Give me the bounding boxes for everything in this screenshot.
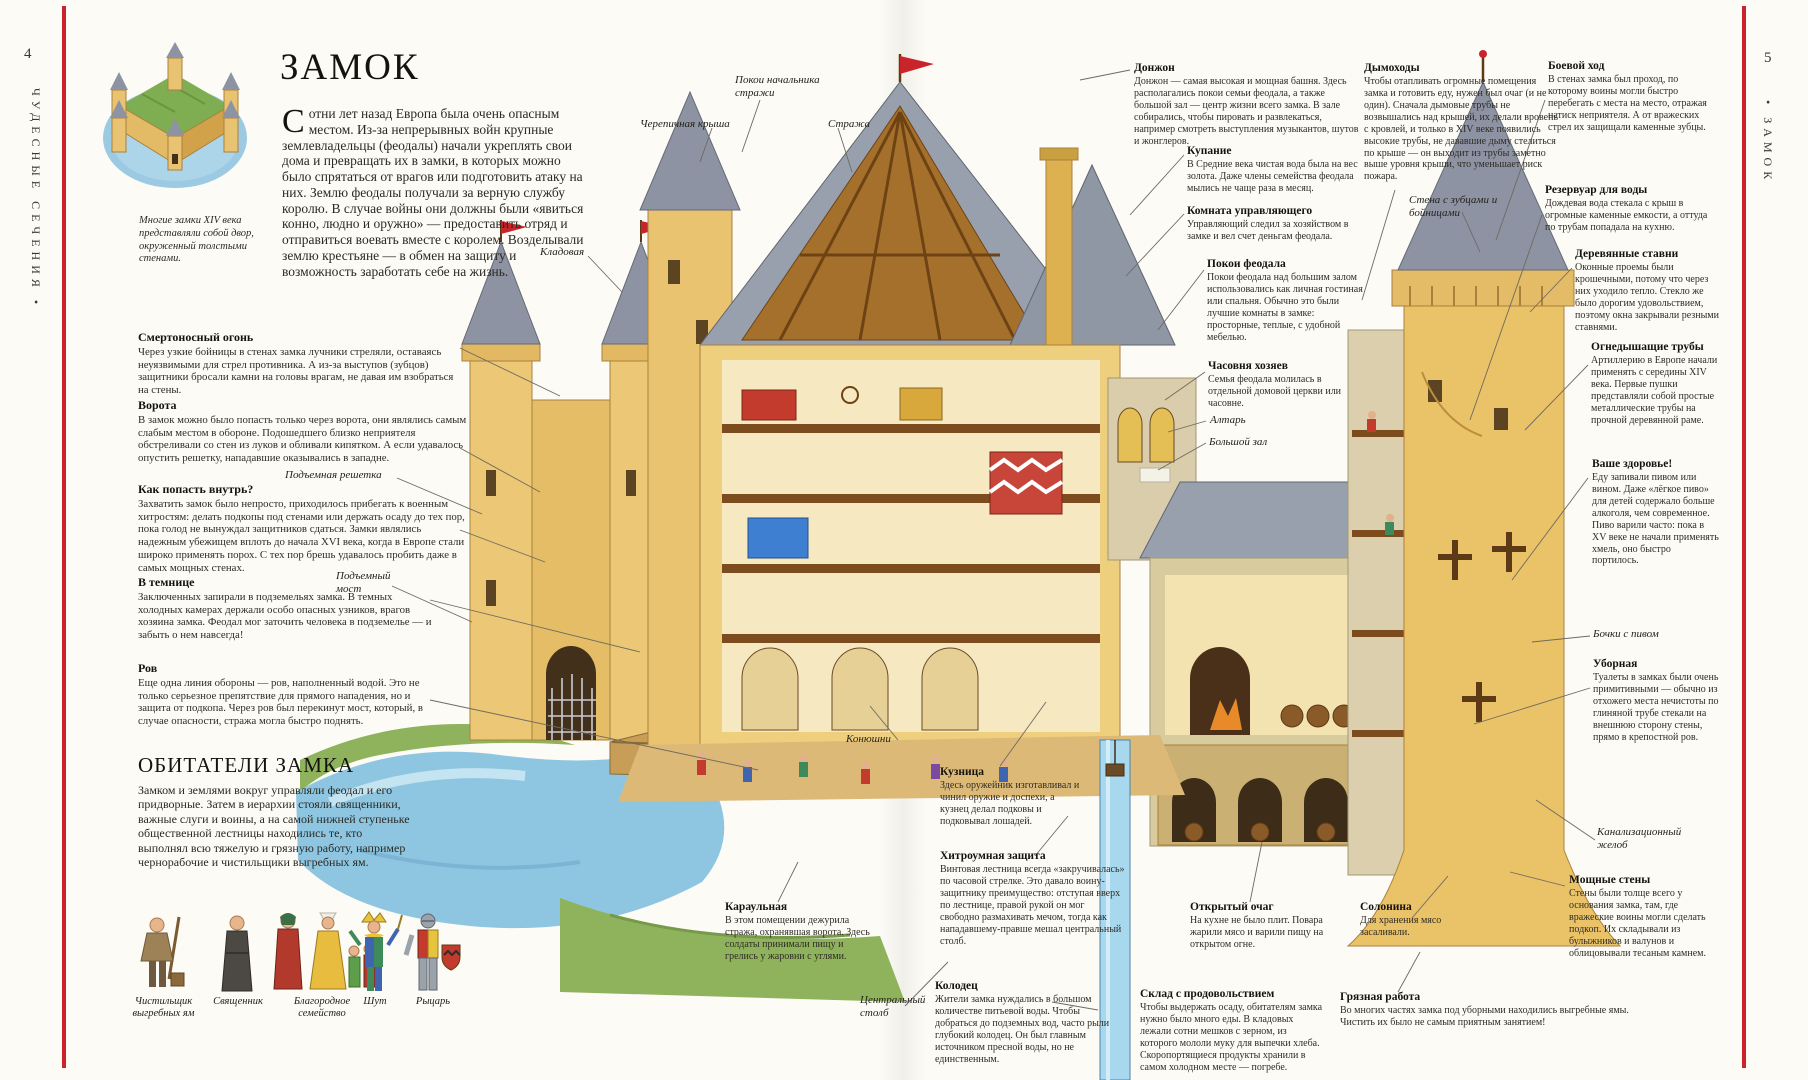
- annotation-title: Боевой ход: [1548, 60, 1716, 73]
- series-title-vertical: ЧУДЕСНЫЕ СЕЧЕНИЯ •: [28, 88, 43, 309]
- book-spread: 4 5 ЧУДЕСНЫЕ СЕЧЕНИЯ • • ЗАМОК ЗАМОК Сот…: [0, 0, 1808, 1080]
- annotation-text: Захватить замок было непросто, приходило…: [138, 498, 468, 575]
- annotation-title: Хитроумная защита: [940, 850, 1126, 863]
- annotation-title: Как попасть внутрь?: [138, 483, 468, 497]
- label-stables: Конюшни: [846, 733, 891, 746]
- annotation-title: Деревянные ставни: [1575, 248, 1720, 261]
- annotation-title: Резервуар для воды: [1545, 184, 1717, 197]
- annotation-text: Здесь оружейник изготавливал и чинил ору…: [940, 780, 1082, 828]
- right-page-number: 5: [1764, 50, 1772, 67]
- label-beer-barrels: Бочки с пивом: [1593, 628, 1659, 641]
- annotation-salted-meat: Солонина Для хранения мясо засаливали.: [1360, 901, 1472, 939]
- annotation-text: Дождевая вода стекала с крыш в огромные …: [1545, 198, 1717, 234]
- page-title: ЗАМОК: [280, 46, 420, 89]
- annotation-title: Колодец: [935, 980, 1117, 993]
- label-great-hall: Большой зал: [1209, 436, 1267, 449]
- inhabitants-section-title: ОБИТАТЕЛИ ЗАМКА: [138, 753, 354, 778]
- annotation-title: Донжон: [1134, 62, 1362, 75]
- annotation-deadly-fire: Смертоносный огонь Через узкие бойницы в…: [138, 331, 460, 397]
- figure-priest-illustration: [212, 913, 262, 995]
- annotation-title: Ваше здоровье!: [1592, 458, 1720, 471]
- annotation-title: Комната управляющего: [1187, 205, 1362, 218]
- label-guards: Стража: [828, 118, 870, 131]
- intro-paragraph: Сотни лет назад Европа была очень опасны…: [282, 106, 584, 280]
- annotation-text: Еду запивали пивом или вином. Даже «лёгк…: [1592, 472, 1720, 567]
- annotation-text: В замок можно было попасть только через …: [138, 414, 468, 465]
- annotation-title: Покои феодала: [1207, 258, 1369, 271]
- label-storeroom: Кладовая: [540, 246, 584, 259]
- figure-caption-gong-farmer: Чистильщик выгребных ям: [116, 996, 211, 1020]
- annotation-text: Жители замка нуждались в большом количес…: [935, 994, 1117, 1065]
- annotation-text: Стены были толще всего у основания замка…: [1569, 888, 1721, 959]
- annotation-text: Семья феодала молилась в отдельной домов…: [1208, 374, 1358, 410]
- figure-caption-priest: Священник: [198, 996, 278, 1008]
- annotation-title: Дымоходы: [1364, 62, 1560, 75]
- annotation-text: Через узкие бойницы в стенах замка лучни…: [138, 346, 460, 397]
- annotation-text: В Средние века чистая вода была на вес з…: [1187, 159, 1367, 195]
- annotation-food-store: Склад с продовольствием Чтобы выдержать …: [1140, 988, 1326, 1074]
- annotation-open-hearth: Открытый очаг На кухне не было плит. Пов…: [1190, 901, 1330, 951]
- left-page-number: 4: [24, 46, 32, 63]
- annotation-text: Покои феодала над большим залом использо…: [1207, 272, 1369, 343]
- annotation-gates: Ворота В замок можно было попасть только…: [138, 399, 468, 465]
- annotation-text: На кухне не было плит. Повара жарили мяс…: [1190, 915, 1330, 951]
- annotation-title: Часовня хозяев: [1208, 360, 1358, 373]
- annotation-guardroom: Караульная В этом помещении дежурила стр…: [725, 901, 877, 963]
- annotation-title: Огнедышащие трубы: [1591, 341, 1721, 354]
- label-crenellated-wall: Стена с зубцами и бойницами: [1409, 194, 1521, 220]
- annotation-donjon: Донжон Донжон — самая высокая и мощная б…: [1134, 62, 1362, 148]
- figure-caption-knight: Рыцарь: [398, 996, 468, 1008]
- annotation-steward-room: Комната управляющего Управляющий следил …: [1187, 205, 1362, 243]
- annotation-text: Туалеты в замках были очень примитивными…: [1593, 672, 1719, 743]
- figure-knight-illustration: [398, 911, 464, 995]
- label-tiled-roof: Черепичная крыша: [640, 118, 730, 131]
- annotation-dirty-work: Грязная работа Во многих частях замка по…: [1340, 991, 1655, 1029]
- chapter-title-vertical: • ЗАМОК: [1760, 100, 1775, 184]
- annotation-wall-walk: Боевой ход В стенах замка был проход, по…: [1548, 60, 1716, 134]
- inhabitants-section-text: Замком и землями вокруг управляли феодал…: [138, 783, 410, 869]
- label-guard-captain-quarters: Покои начальника стражи: [735, 74, 847, 100]
- annotation-moat: Ров Еще одна линия обороны — ров, наполн…: [138, 662, 438, 728]
- annotation-title: Караульная: [725, 901, 877, 914]
- annotation-title: Ров: [138, 662, 438, 676]
- annotation-fire-breathing-guns: Огнедышащие трубы Артиллерию в Европе на…: [1591, 341, 1721, 427]
- annotation-text: Чтобы выдержать осаду, обитателям замка …: [1140, 1002, 1326, 1073]
- annotation-title: Смертоносный огонь: [138, 331, 460, 345]
- annotation-cunning-defense: Хитроумная защита Винтовая лестница всег…: [940, 850, 1126, 947]
- annotation-chapel: Часовня хозяев Семья феодала молилась в …: [1208, 360, 1358, 410]
- annotation-text: Оконные проемы были крошечными, потому ч…: [1575, 262, 1720, 333]
- annotation-title: Уборная: [1593, 658, 1719, 671]
- label-portcullis: Подъемная решетка: [285, 469, 382, 482]
- annotation-latrine: Уборная Туалеты в замках были очень прим…: [1593, 658, 1719, 744]
- annotation-text: Для хранения мясо засаливали.: [1360, 915, 1472, 939]
- annotation-your-health: Ваше здоровье! Еду запивали пивом или ви…: [1592, 458, 1720, 567]
- annotation-title: Склад с продовольствием: [1140, 988, 1326, 1001]
- annotation-forge: Кузница Здесь оружейник изготавливал и ч…: [940, 766, 1082, 828]
- annotation-title: Грязная работа: [1340, 991, 1655, 1004]
- annotation-title: Открытый очаг: [1190, 901, 1330, 914]
- annotation-title: Солонина: [1360, 901, 1472, 914]
- annotation-chimneys: Дымоходы Чтобы отапливать огромные помещ…: [1364, 62, 1560, 183]
- annotation-text: В этом помещении дежурила стража, охраня…: [725, 915, 877, 963]
- annotation-how-to-get-inside: Как попасть внутрь? Захватить замок было…: [138, 483, 468, 575]
- thumbnail-castle-illustration: [100, 42, 250, 202]
- annotation-title: Ворота: [138, 399, 468, 413]
- annotation-wooden-shutters: Деревянные ставни Оконные проемы были кр…: [1575, 248, 1720, 334]
- label-sewage-chute: Канализационный желоб: [1597, 826, 1709, 852]
- annotation-title: Мощные стены: [1569, 874, 1721, 887]
- annotation-text: Еще одна линия обороны — ров, наполненны…: [138, 677, 438, 728]
- annotation-text: В стенах замка был проход, по которому в…: [1548, 74, 1716, 133]
- intro-dropcap: С: [282, 106, 309, 136]
- annotation-text: Заключенных запирали в подземельях замка…: [138, 591, 438, 642]
- annotation-title: Купание: [1187, 145, 1367, 158]
- annotation-text: Донжон — самая высокая и мощная башня. З…: [1134, 76, 1362, 147]
- annotation-text: Артиллерию в Европе начали применять с с…: [1591, 355, 1721, 426]
- intro-text: отни лет назад Европа была очень опасным…: [282, 106, 584, 279]
- annotation-text: Винтовая лестница всегда «закручивалась»…: [940, 864, 1126, 947]
- annotation-well: Колодец Жители замка нуждались в большом…: [935, 980, 1117, 1066]
- annotation-mighty-walls: Мощные стены Стены были толще всего у ос…: [1569, 874, 1721, 960]
- label-central-pillar: Центральный столб: [860, 994, 942, 1020]
- label-altar: Алтарь: [1210, 414, 1246, 427]
- annotation-title: Кузница: [940, 766, 1082, 779]
- figure-jester-illustration: [346, 911, 404, 995]
- annotation-text: Во многих частях замка под уборными нахо…: [1340, 1005, 1655, 1029]
- annotation-bathing: Купание В Средние века чистая вода была …: [1187, 145, 1367, 195]
- annotation-lord-chambers: Покои феодала Покои феодала над большим …: [1207, 258, 1369, 344]
- annotation-text: Управляющий следил за хозяйством в замке…: [1187, 219, 1362, 243]
- figure-gong-farmer-illustration: [125, 913, 195, 995]
- annotation-water-reservoir: Резервуар для воды Дождевая вода стекала…: [1545, 184, 1717, 234]
- label-drawbridge: Подъемный мост: [336, 570, 414, 596]
- thumbnail-caption: Многие замки XIV века представляли собой…: [139, 215, 267, 266]
- annotation-text: Чтобы отапливать огромные помещения замк…: [1364, 76, 1560, 183]
